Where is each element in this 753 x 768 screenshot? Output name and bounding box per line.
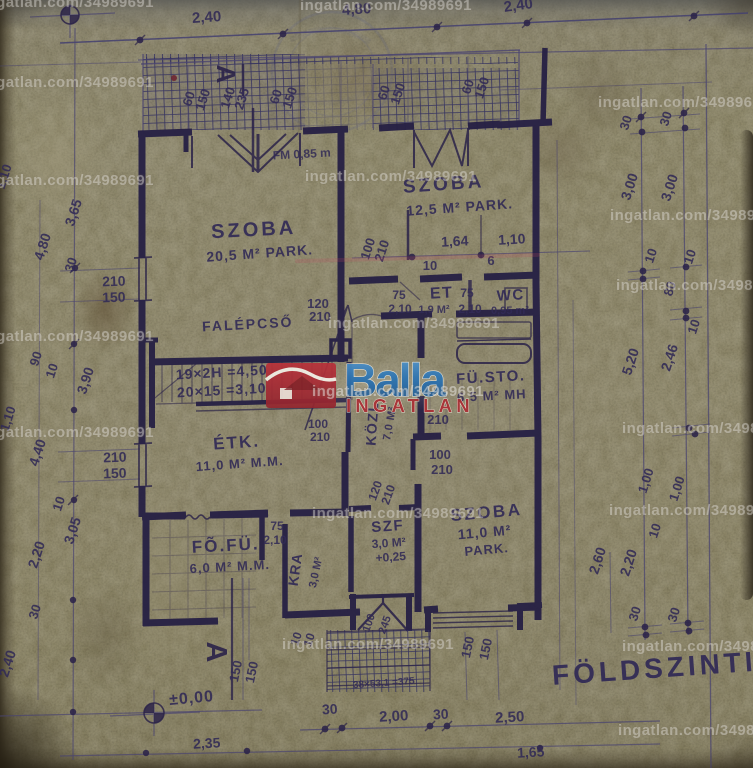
svg-text:4,40: 4,40	[25, 437, 49, 468]
svg-text:10: 10	[49, 494, 68, 512]
svg-text:150: 150	[242, 660, 261, 684]
svg-text:2,10: 2,10	[388, 302, 412, 316]
svg-text:3,00: 3,00	[657, 172, 681, 203]
svg-text:150: 150	[279, 85, 300, 110]
svg-text:3,0 M²: 3,0 M²	[371, 535, 406, 551]
svg-text:SZOBA: SZOBA	[211, 217, 297, 243]
svg-text:120: 120	[307, 296, 329, 311]
svg-text:A: A	[200, 642, 232, 663]
svg-text:235: 235	[231, 86, 252, 111]
svg-text:2,20: 2,20	[616, 547, 640, 578]
svg-text:30: 30	[625, 604, 644, 622]
svg-text:150: 150	[471, 75, 492, 100]
svg-text:WC: WC	[496, 286, 525, 304]
svg-text:2,40: 2,40	[192, 8, 222, 27]
svg-text:FALÉPCSŐ: FALÉPCSŐ	[202, 313, 294, 335]
svg-text:30: 30	[616, 113, 635, 131]
svg-text:150: 150	[476, 637, 495, 661]
svg-text:2,10: 2,10	[458, 302, 482, 316]
svg-text:75: 75	[460, 286, 474, 300]
svg-text:90: 90	[26, 349, 45, 367]
svg-text:20,5 M² PARK.: 20,5 M² PARK.	[206, 241, 314, 264]
svg-text:30: 30	[664, 605, 683, 623]
svg-text:150: 150	[103, 465, 127, 482]
svg-text:210: 210	[371, 238, 392, 263]
svg-text:2,10: 2,10	[263, 533, 287, 547]
svg-text:4,80: 4,80	[30, 231, 54, 262]
svg-text:30: 30	[322, 701, 339, 718]
svg-text:2,40: 2,40	[0, 648, 19, 679]
svg-text:3,65: 3,65	[61, 197, 85, 228]
svg-text:3,0 M²: 3,0 M²	[307, 556, 325, 589]
svg-text:PARK.: PARK.	[464, 540, 510, 559]
svg-text:2,35: 2,35	[193, 734, 221, 751]
svg-text:60: 60	[179, 89, 198, 107]
svg-text:7,0 M²: 7,0 M²	[381, 406, 399, 442]
svg-text:30: 30	[61, 255, 80, 273]
svg-text:100: 100	[429, 447, 451, 462]
svg-text:19×2H =4,50: 19×2H =4,50	[175, 362, 268, 383]
svg-text:150: 150	[458, 635, 477, 659]
svg-text:210: 210	[427, 412, 449, 427]
svg-text:210: 210	[102, 273, 126, 290]
svg-text:210: 210	[103, 449, 127, 466]
svg-text:3,00: 3,00	[617, 171, 641, 202]
svg-text:150: 150	[226, 659, 245, 683]
svg-text:FM 0,85 m: FM 0,85 m	[272, 145, 331, 162]
svg-text:10: 10	[423, 258, 437, 273]
svg-text:5,20: 5,20	[618, 346, 642, 377]
svg-text:10: 10	[645, 521, 664, 539]
svg-text:245: 245	[376, 614, 394, 635]
svg-text:10: 10	[680, 247, 699, 265]
svg-text:11,0 M²: 11,0 M²	[457, 522, 512, 543]
svg-text:+0,25: +0,25	[375, 549, 407, 565]
svg-text:2,00: 2,00	[379, 707, 409, 726]
svg-text:75: 75	[392, 288, 406, 302]
svg-text:1,00: 1,00	[666, 474, 688, 503]
svg-text:60: 60	[266, 87, 285, 105]
svg-text:1,00: 1,00	[635, 466, 657, 495]
svg-text:2,50: 2,50	[495, 708, 525, 727]
svg-text:210: 210	[378, 483, 398, 507]
svg-text:210: 210	[431, 462, 453, 477]
svg-text:60: 60	[458, 77, 477, 95]
svg-text:210: 210	[310, 430, 330, 444]
svg-text:10: 10	[684, 317, 703, 335]
svg-text:30: 30	[25, 602, 44, 620]
svg-text:2,46: 2,46	[657, 342, 681, 373]
svg-text:30: 30	[433, 706, 450, 723]
svg-text:KÖZL: KÖZL	[362, 401, 381, 446]
svg-text:KRA: KRA	[285, 552, 305, 587]
svg-text:6: 6	[487, 253, 494, 268]
svg-text:100: 100	[308, 417, 328, 431]
svg-text:ET: ET	[430, 284, 454, 302]
svg-text:100: 100	[357, 236, 378, 261]
svg-text:120: 120	[365, 479, 385, 503]
svg-text:FÕ.FÜ.: FÕ.FÜ.	[191, 533, 260, 557]
svg-text:1,64: 1,64	[441, 232, 469, 249]
svg-text:150: 150	[102, 289, 126, 306]
svg-text:20×15 =3,10: 20×15 =3,10	[177, 380, 267, 401]
svg-text:30: 30	[656, 109, 675, 127]
svg-text:140: 140	[217, 85, 238, 110]
svg-text:100: 100	[360, 612, 378, 633]
svg-text:1,10: 1,10	[498, 230, 526, 247]
svg-text:38×53,1 =375: 38×53,1 =375	[353, 676, 416, 691]
svg-text:10: 10	[42, 361, 61, 379]
svg-text:A: A	[211, 65, 241, 84]
svg-text:150: 150	[192, 87, 213, 112]
svg-text:12,5 M² PARK.: 12,5 M² PARK.	[406, 195, 514, 218]
svg-text:11,0 M² M.M.: 11,0 M² M.M.	[195, 453, 284, 474]
svg-text:60: 60	[374, 83, 393, 101]
svg-text:ÉTK.: ÉTK.	[213, 431, 261, 453]
svg-text:3,05: 3,05	[60, 515, 84, 546]
svg-text:75: 75	[270, 519, 284, 533]
svg-text:2,20: 2,20	[24, 539, 48, 570]
svg-text:10: 10	[641, 246, 660, 264]
svg-text:2,40: 2,40	[503, 0, 534, 16]
svg-text:1,65: 1,65	[517, 743, 545, 760]
svg-text:2,60: 2,60	[585, 545, 609, 576]
svg-text:150: 150	[387, 81, 408, 106]
svg-text:±0,00: ±0,00	[168, 688, 214, 709]
svg-text:6,0 M² M.M.: 6,0 M² M.M.	[189, 557, 270, 576]
svg-text:3,90: 3,90	[73, 365, 97, 396]
